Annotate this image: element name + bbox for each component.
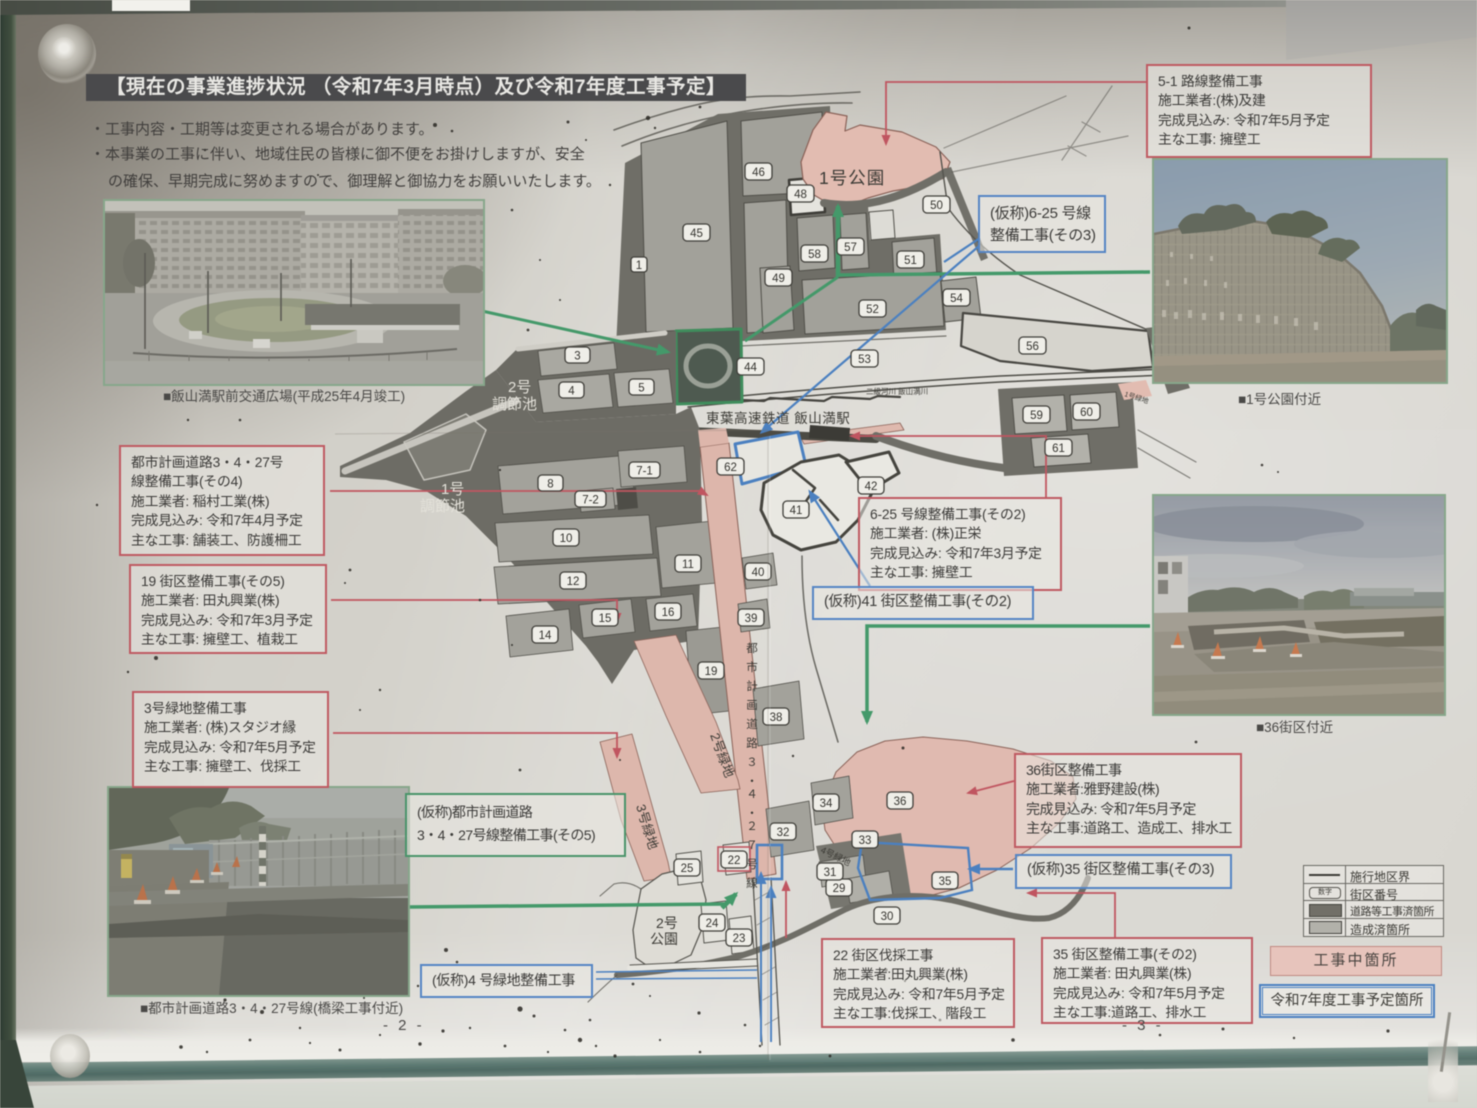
svg-text:・: ・: [746, 776, 758, 788]
svg-text:７: ７: [746, 840, 758, 852]
svg-text:23: 23: [733, 933, 746, 945]
svg-text:34: 34: [820, 798, 833, 810]
svg-text:1号公園: 1号公園: [819, 168, 885, 188]
svg-text:38: 38: [770, 712, 783, 724]
svg-text:49: 49: [772, 273, 785, 285]
svg-text:3号緑地: 3号緑地: [633, 802, 661, 851]
svg-text:42: 42: [865, 481, 878, 493]
svg-text:2号: 2号: [508, 379, 531, 396]
svg-text:44: 44: [744, 362, 757, 374]
svg-text:２: ２: [746, 821, 758, 833]
svg-text:公園: 公園: [650, 931, 678, 947]
svg-text:調節池: 調節池: [420, 497, 465, 515]
svg-text:1: 1: [636, 260, 642, 272]
svg-text:市: 市: [746, 660, 758, 674]
svg-text:３: ３: [746, 757, 758, 769]
svg-text:53: 53: [858, 354, 871, 366]
svg-text:25: 25: [681, 863, 694, 875]
svg-text:59: 59: [1030, 410, 1043, 422]
svg-text:19: 19: [705, 666, 718, 678]
svg-text:51: 51: [904, 255, 917, 267]
svg-text:62: 62: [724, 462, 737, 474]
svg-text:45: 45: [690, 228, 703, 240]
svg-text:31: 31: [824, 867, 837, 879]
svg-text:二級河川 飯山満川: 二級河川 飯山満川: [866, 386, 928, 396]
svg-text:8: 8: [547, 479, 553, 491]
svg-text:5: 5: [638, 383, 644, 395]
svg-text:58: 58: [808, 249, 821, 261]
svg-text:40: 40: [752, 567, 765, 579]
svg-text:11: 11: [682, 559, 694, 571]
svg-text:都: 都: [746, 642, 758, 655]
svg-text:・: ・: [746, 808, 758, 820]
svg-text:36: 36: [894, 796, 907, 808]
svg-text:線: 線: [746, 876, 758, 890]
svg-text:57: 57: [844, 242, 857, 254]
svg-text:7-1: 7-1: [636, 466, 653, 478]
svg-text:41: 41: [790, 505, 803, 517]
svg-text:道: 道: [746, 717, 758, 731]
svg-text:7-2: 7-2: [582, 495, 599, 507]
svg-text:3: 3: [574, 351, 580, 363]
svg-text:14: 14: [539, 630, 552, 642]
svg-text:29: 29: [833, 883, 846, 895]
svg-text:16: 16: [662, 607, 675, 619]
svg-text:50: 50: [930, 200, 943, 212]
svg-text:35: 35: [939, 876, 952, 888]
svg-text:30: 30: [881, 911, 894, 923]
svg-text:54: 54: [950, 293, 963, 305]
svg-text:1号緑地: 1号緑地: [1123, 389, 1149, 405]
svg-text:32: 32: [777, 827, 790, 839]
svg-text:61: 61: [1052, 443, 1065, 455]
svg-text:調節池: 調節池: [492, 395, 537, 413]
svg-text:60: 60: [1080, 407, 1093, 419]
svg-text:48: 48: [794, 189, 807, 201]
svg-text:15: 15: [599, 613, 612, 625]
svg-text:4: 4: [568, 386, 575, 398]
svg-text:12: 12: [567, 576, 580, 588]
svg-text:56: 56: [1026, 341, 1039, 353]
svg-text:24: 24: [706, 918, 719, 930]
svg-text:22: 22: [728, 855, 741, 867]
svg-text:画: 画: [746, 700, 758, 712]
svg-text:2号: 2号: [656, 915, 678, 931]
svg-text:４: ４: [746, 789, 758, 801]
svg-text:2号緑地: 2号緑地: [707, 731, 737, 780]
svg-text:39: 39: [745, 613, 758, 625]
svg-text:東葉高速鉄道 飯山満駅: 東葉高速鉄道 飯山満駅: [706, 410, 850, 426]
svg-text:52: 52: [866, 304, 879, 316]
svg-text:33: 33: [859, 835, 872, 847]
svg-text:10: 10: [560, 533, 573, 545]
svg-text:号: 号: [746, 858, 758, 871]
svg-text:計: 計: [746, 679, 758, 693]
svg-text:1号: 1号: [441, 481, 464, 498]
svg-text:路: 路: [746, 736, 758, 750]
